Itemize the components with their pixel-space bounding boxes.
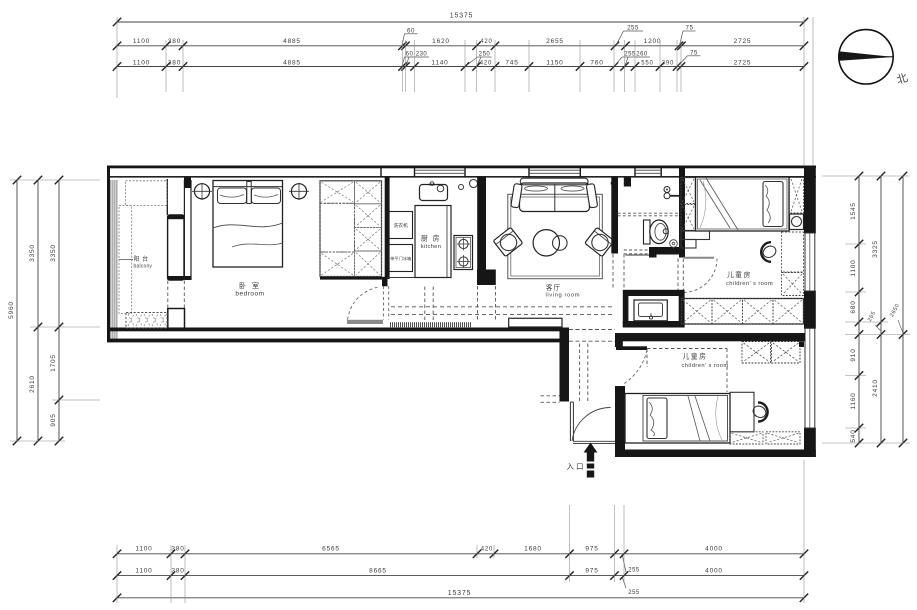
svg-text:380: 380 [171, 568, 184, 575]
svg-text:1100: 1100 [135, 568, 152, 575]
svg-text:1100: 1100 [135, 546, 152, 553]
svg-text:760: 760 [590, 59, 603, 66]
svg-text:6565: 6565 [322, 546, 340, 553]
svg-text:洗衣机: 洗衣机 [393, 222, 408, 229]
svg-text:1545: 1545 [850, 202, 857, 220]
svg-text:2725: 2725 [734, 59, 752, 66]
svg-text:1160: 1160 [850, 392, 857, 409]
svg-text:children' s room: children' s room [682, 363, 729, 369]
svg-text:2610: 2610 [29, 375, 36, 393]
svg-text:255: 255 [628, 568, 640, 574]
svg-text:905: 905 [50, 413, 57, 426]
svg-text:420: 420 [480, 39, 492, 45]
svg-text:4885: 4885 [283, 38, 301, 45]
svg-text:230: 230 [416, 51, 428, 57]
svg-text:2410: 2410 [872, 379, 879, 397]
svg-text:1140: 1140 [431, 59, 448, 66]
svg-text:厨 房: 厨 房 [421, 234, 441, 243]
svg-text:250: 250 [479, 51, 491, 57]
svg-text:420: 420 [481, 547, 493, 553]
svg-text:975: 975 [585, 546, 598, 553]
svg-text:975: 975 [585, 568, 598, 575]
svg-text:卧 室: 卧 室 [239, 281, 261, 290]
svg-text:1200: 1200 [644, 38, 662, 45]
svg-text:15375: 15375 [450, 13, 473, 20]
svg-text:75: 75 [686, 25, 694, 32]
svg-text:380: 380 [171, 546, 184, 553]
svg-text:2725: 2725 [734, 38, 752, 45]
svg-text:1680: 1680 [524, 546, 542, 553]
svg-text:15375: 15375 [448, 590, 471, 597]
svg-text:540: 540 [850, 429, 857, 442]
svg-text:260: 260 [636, 51, 648, 57]
svg-text:3350: 3350 [29, 244, 36, 262]
svg-text:1100: 1100 [133, 59, 150, 66]
svg-text:3350: 3350 [50, 244, 57, 262]
svg-text:910: 910 [850, 348, 857, 361]
svg-text:4000: 4000 [705, 546, 723, 553]
svg-text:255: 255 [624, 51, 636, 57]
svg-text:380: 380 [168, 59, 181, 66]
svg-text:儿童房: 儿童房 [683, 352, 708, 361]
svg-text:客厅: 客厅 [546, 283, 561, 292]
svg-text:1100: 1100 [133, 38, 150, 45]
svg-text:255: 255 [627, 25, 639, 32]
svg-text:bedroom: bedroom [235, 291, 264, 298]
svg-text:4885: 4885 [283, 59, 301, 66]
svg-text:3325: 3325 [872, 240, 879, 258]
svg-text:745: 745 [505, 59, 518, 66]
svg-text:8665: 8665 [369, 568, 387, 575]
svg-text:living room: living room [546, 293, 581, 299]
svg-text:5960: 5960 [8, 301, 15, 319]
svg-text:children' s room: children' s room [726, 281, 773, 287]
svg-text:420: 420 [480, 60, 492, 66]
svg-text:380: 380 [168, 38, 181, 45]
svg-text:balcony: balcony [134, 264, 153, 270]
svg-text:儿童房: 儿童房 [727, 270, 752, 279]
svg-text:390: 390 [662, 60, 674, 66]
svg-text:4000: 4000 [705, 568, 723, 575]
svg-text:60: 60 [406, 51, 414, 57]
svg-text:kitchen: kitchen [421, 244, 441, 250]
svg-text:550: 550 [641, 60, 653, 66]
svg-text:带平门冰箱: 带平门冰箱 [390, 255, 411, 262]
svg-text:阳 台: 阳 台 [134, 255, 149, 263]
svg-text:255: 255 [628, 590, 640, 596]
svg-text:2655: 2655 [546, 38, 564, 45]
svg-text:入口: 入口 [567, 462, 586, 471]
svg-text:1620: 1620 [432, 38, 450, 45]
svg-text:1150: 1150 [546, 59, 563, 66]
svg-text:1100: 1100 [850, 259, 857, 276]
svg-text:1705: 1705 [50, 354, 57, 372]
svg-text:680: 680 [850, 300, 857, 313]
